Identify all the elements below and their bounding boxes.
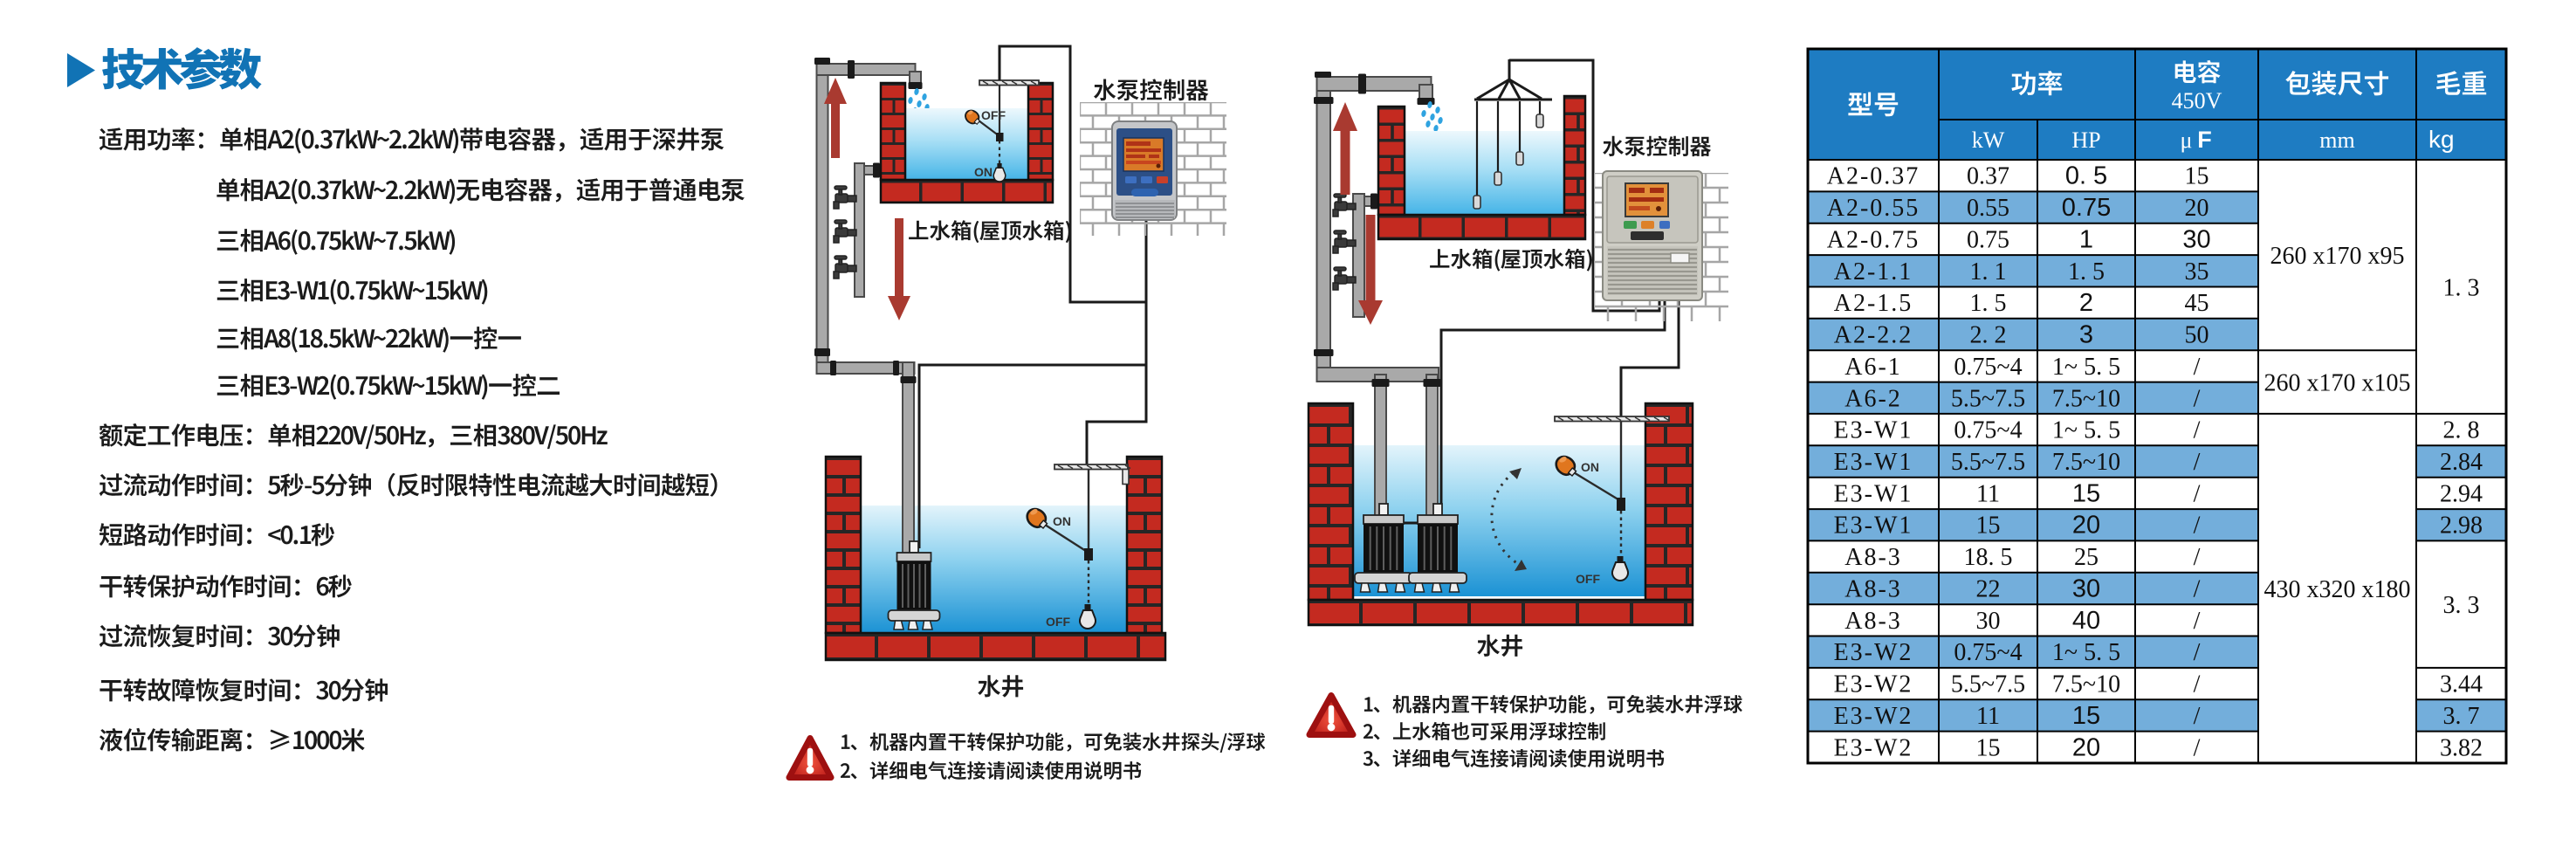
svg-text:/: / [2194,417,2201,444]
svg-text:/: / [2194,576,2201,603]
svg-text:18. 5: 18. 5 [1964,544,2013,571]
svg-text:F: F [2197,127,2212,153]
svg-text:E3-W1: E3-W1 [1834,417,1913,444]
svg-text:30: 30 [2182,225,2210,253]
svg-text:50: 50 [2185,322,2209,349]
svg-text:2. 8: 2. 8 [2443,417,2480,444]
svg-text:20: 20 [2072,733,2100,761]
svg-text:/: / [2194,544,2201,571]
svg-text:0.75~4: 0.75~4 [1954,354,2022,381]
svg-text:A2-0.55: A2-0.55 [1827,195,1920,222]
svg-text:E3-W1: E3-W1 [1834,512,1913,540]
svg-text:260 x170 x95: 260 x170 x95 [2270,243,2405,270]
svg-text:1~ 5. 5: 1~ 5. 5 [2052,354,2120,381]
svg-text:1~ 5. 5: 1~ 5. 5 [2052,417,2120,444]
svg-text:30: 30 [1976,608,2001,635]
svg-text:E3-W2: E3-W2 [1834,703,1913,730]
svg-text:3.82: 3.82 [2440,734,2483,761]
svg-text:A2-2.2: A2-2.2 [1834,322,1913,349]
svg-text:A2-1.5: A2-1.5 [1834,290,1913,317]
svg-text:1~ 5. 5: 1~ 5. 5 [2052,639,2120,666]
svg-text:1. 3: 1. 3 [2443,275,2480,302]
svg-text:A2-1.1: A2-1.1 [1834,258,1913,285]
svg-text:2.98: 2.98 [2440,512,2483,540]
svg-text:A8-3: A8-3 [1844,608,1902,635]
svg-text:OFF: OFF [981,108,1006,122]
svg-text:E3-W1: E3-W1 [1834,449,1913,476]
svg-text:A6-2: A6-2 [1844,385,1902,412]
svg-text:/: / [2194,608,2201,635]
svg-text:kW: kW [1972,127,2005,153]
svg-text:7.5~10: 7.5~10 [2052,385,2120,412]
svg-text:15: 15 [1976,734,2001,761]
svg-text:11: 11 [1976,480,2000,507]
svg-text:/: / [2194,734,2201,761]
svg-text:/: / [2194,480,2201,507]
svg-text:1. 5: 1. 5 [1970,290,2007,317]
svg-text:0.55: 0.55 [1967,195,2009,222]
svg-text:2. 2: 2. 2 [1970,322,2007,349]
svg-text:11: 11 [1976,703,2000,730]
svg-text:5.5~7.5: 5.5~7.5 [1951,449,2025,476]
svg-text:μ: μ [2181,127,2193,153]
svg-text:ON: ON [974,165,993,179]
svg-text:0.37: 0.37 [1967,163,2009,190]
svg-text:OFF: OFF [1576,572,1600,586]
svg-text:ON: ON [1053,514,1071,528]
svg-text:45: 45 [2185,290,2209,317]
svg-text:35: 35 [2185,258,2209,285]
svg-text:/: / [2194,449,2201,476]
svg-text:OFF: OFF [1046,615,1070,629]
svg-text:/: / [2194,639,2201,666]
svg-text:20: 20 [2072,512,2100,540]
svg-text:2.84: 2.84 [2440,449,2483,476]
svg-text:430 x320 x180: 430 x320 x180 [2264,576,2411,603]
svg-text:15: 15 [2072,479,2100,507]
svg-text:30: 30 [2072,575,2100,603]
svg-text:20: 20 [2185,195,2209,222]
svg-text:A6-1: A6-1 [1844,354,1902,381]
svg-text:kg: kg [2428,126,2455,153]
svg-text:0.75: 0.75 [1967,226,2009,253]
svg-text:1. 1: 1. 1 [1970,258,2007,285]
svg-text:HP: HP [2071,127,2100,153]
svg-text:3: 3 [2079,321,2093,349]
svg-text:3.44: 3.44 [2440,671,2483,698]
svg-text:2.94: 2.94 [2440,480,2483,507]
svg-text:/: / [2194,385,2201,412]
svg-text:A8-3: A8-3 [1844,544,1902,571]
svg-text:3. 3: 3. 3 [2443,592,2480,619]
svg-text:7.5~10: 7.5~10 [2052,671,2120,698]
svg-text:0. 5: 0. 5 [2065,162,2107,190]
svg-text:E3-W2: E3-W2 [1834,671,1913,698]
svg-text:/: / [2194,512,2201,540]
svg-text:1: 1 [2079,225,2093,253]
svg-text:15: 15 [1976,512,2001,540]
svg-text:7.5~10: 7.5~10 [2052,449,2120,476]
svg-text:5.5~7.5: 5.5~7.5 [1951,385,2025,412]
svg-text:E3-W2: E3-W2 [1834,734,1913,761]
svg-text:15: 15 [2185,163,2209,190]
svg-text:260 x170 x105: 260 x170 x105 [2264,370,2411,397]
svg-text:5.5~7.5: 5.5~7.5 [1951,671,2025,698]
svg-text:E3-W1: E3-W1 [1834,480,1913,507]
svg-text:25: 25 [2074,544,2099,571]
svg-text:0.75: 0.75 [2062,194,2111,222]
svg-text:ON: ON [1581,460,1599,474]
svg-text:/: / [2194,354,2201,381]
svg-text:2: 2 [2079,289,2093,317]
svg-text:450V: 450V [2172,88,2222,114]
svg-text:22: 22 [1976,576,2001,603]
svg-text:15: 15 [2072,702,2100,730]
svg-text:3. 7: 3. 7 [2443,703,2480,730]
svg-text:0.75~4: 0.75~4 [1954,639,2022,666]
svg-text:A2-0.37: A2-0.37 [1827,163,1920,190]
svg-text:E3-W2: E3-W2 [1834,639,1913,666]
svg-text:mm: mm [2319,127,2354,153]
svg-text:A8-3: A8-3 [1844,576,1902,603]
svg-text:0.75~4: 0.75~4 [1954,417,2022,444]
svg-text:/: / [2194,703,2201,730]
svg-text:40: 40 [2072,607,2100,635]
svg-text:1. 5: 1. 5 [2068,258,2105,285]
svg-text:A2-0.75: A2-0.75 [1827,226,1920,253]
svg-text:/: / [2194,671,2201,698]
